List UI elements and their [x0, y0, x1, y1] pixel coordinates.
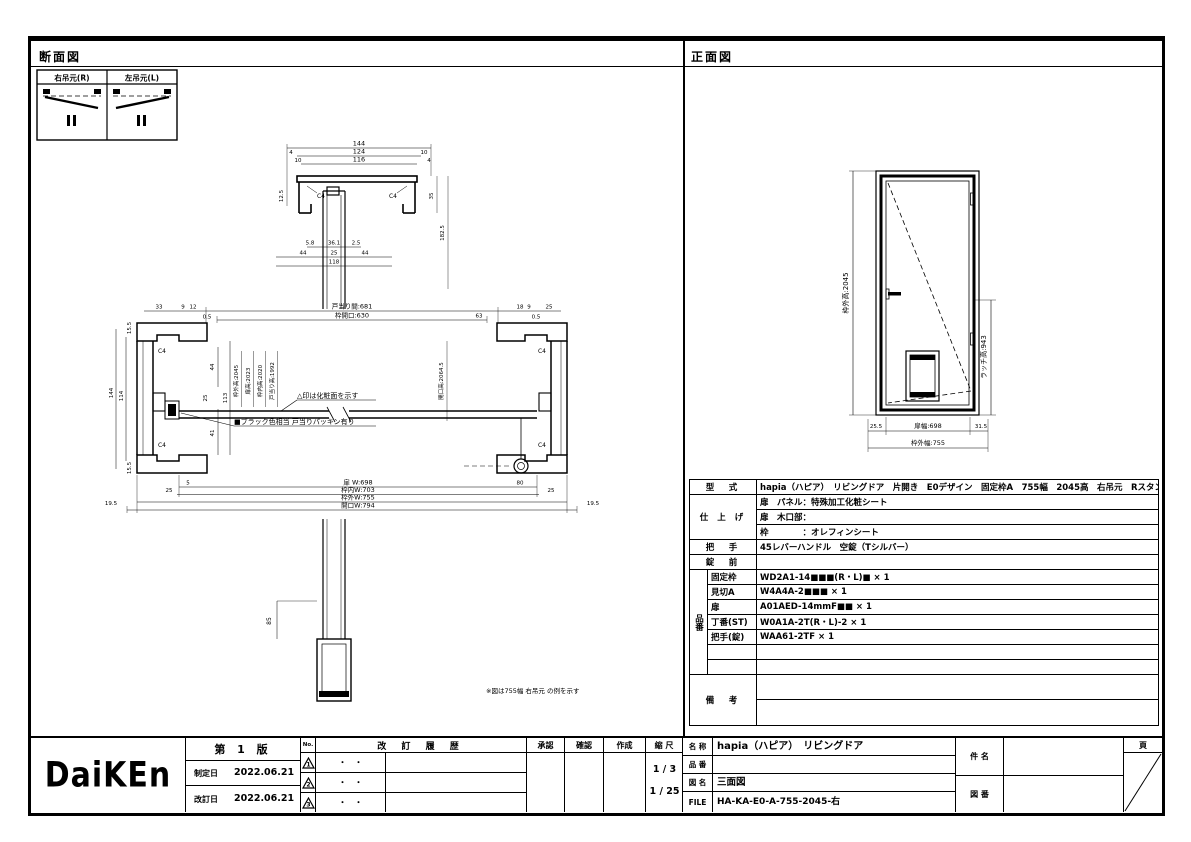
chamfer-c4-head-left: C4 [317, 193, 325, 200]
dim-25-top: 25 [546, 305, 553, 311]
page-cell [1124, 753, 1162, 812]
scale-value-2: 1 / 25 [646, 783, 683, 799]
zumei-label: 図 名 [683, 774, 713, 792]
spec-handle-label: 把 手 [690, 540, 757, 555]
svg-text:3: 3 [306, 801, 310, 808]
vdim-1: 枠外高:2045 [232, 364, 240, 397]
spec-lock-label: 錠 前 [690, 555, 757, 570]
spec-model-label: 型 式 [690, 480, 757, 495]
dim-114-plan: 114 [119, 390, 125, 401]
vdim-opening: 開口高:2064.5 [437, 362, 445, 400]
zuban-value [1004, 776, 1124, 812]
section-view-drawing: 右吊元(R) 左吊元(L) 1 [31, 41, 683, 736]
dim-door-width-698: 扉幅:698 [914, 421, 942, 430]
dim-18: 18 [517, 305, 524, 311]
spec-item-value [757, 645, 1159, 660]
create-cell [604, 753, 646, 812]
left-hinge-icon [113, 89, 171, 126]
plan-section-detail: 戸当り間:681 枠開口:630 33 9 12 0.5 63 18 9 25 … [105, 302, 600, 702]
bottom-width-dims: 扉 W:698 枠内W:703 枠外W:755 開口W:794 19.5 19.… [105, 475, 600, 513]
left-jamb-profile: C4 C4 [137, 323, 207, 473]
kenmei-value [1004, 738, 1124, 776]
rev-date-3: ・ ・ [316, 793, 386, 812]
chamfer-c4-left-bottom: C4 [158, 442, 166, 449]
title-block: DaiKEn 第 1 版 制定日 2022.06.21 改訂日 2022.06.… [31, 736, 1162, 812]
name-label: 名 称 [683, 738, 713, 756]
chamfer-c4-right-top: C4 [538, 348, 546, 355]
dim-25-5: 25.5 [870, 424, 883, 430]
file-label: FILE [683, 792, 713, 812]
check-cell [565, 753, 604, 812]
scale-cell: 1 / 3 1 / 25 [646, 753, 683, 812]
rev-triangle-3: 3 [301, 793, 316, 812]
dim-19-5-left: 19.5 [105, 501, 118, 507]
spec-handle-value: 45レバーハンドル 空錠（Tシルバー） [757, 540, 1159, 555]
spec-lock-value [757, 555, 1159, 570]
specification-table: 型 式 hapia（ハピア） リビングドア 片開き E0デザイン 固定枠A 75… [689, 479, 1159, 726]
dim-44-plan: 44 [210, 363, 216, 370]
spec-item-value: A01AED-14mmF■■ × 1 [757, 600, 1159, 615]
dim-31-5: 31.5 [975, 424, 988, 430]
left-vertical-dims: 15.5 144 114 15.5 44 25 113 41 [109, 321, 230, 474]
chamfer-c4-left-top: C4 [158, 348, 166, 355]
enacted-date: 2022.06.21 [234, 767, 294, 778]
revised-date: 2022.06.21 [234, 793, 294, 804]
hinban-label: 品 番 [683, 756, 713, 774]
note-decorative-face: △印は化粧面を示す [297, 391, 358, 400]
dim-10-left: 10 [295, 158, 302, 164]
dim-opening-794: 開口W:794 [341, 502, 375, 510]
dim-35: 35 [429, 192, 435, 199]
spec-item-name [708, 660, 757, 675]
vdim-3: 枠内高:2020 [256, 364, 264, 397]
dim-25-bottom-right: 25 [548, 488, 555, 494]
dim-0-5-left: 0.5 [203, 315, 212, 321]
plan-notes: △印は化粧面を示す ■ブラック色相当 戸当りパッキン有り [181, 391, 376, 426]
approve-header: 承認 [527, 738, 565, 753]
dim-15-5-bottom: 15.5 [127, 461, 133, 474]
svg-text:1: 1 [306, 761, 310, 768]
approve-cell [527, 753, 565, 812]
spec-item-value: W4A4A-2■■■ × 1 [757, 585, 1159, 600]
check-header: 確認 [565, 738, 604, 753]
dim-63: 63 [476, 314, 483, 320]
spec-item-name [708, 645, 757, 660]
dim-frame-width-755: 枠外幅:755 [911, 438, 945, 447]
dim-0-5-right: 0.5 [532, 315, 541, 321]
head-section-detail: 144 124 116 4 10 10 4 C4 C4 [276, 140, 448, 310]
spec-finish-panel: 扉 パネル：特殊加工化粧シート [757, 495, 1159, 510]
spec-hinban-label: 品番 [690, 570, 708, 675]
scale-header: 縮 尺 [646, 738, 683, 753]
spec-item-value [757, 660, 1159, 675]
enacted-label: 制定日 [194, 768, 218, 779]
dim-12: 12 [190, 305, 197, 311]
daiken-logo-text: DaiKEn [45, 755, 172, 795]
dim-25-plan: 25 [203, 394, 209, 401]
zumei-value: 三面図 [713, 774, 956, 792]
dim-19-5-right: 19.5 [587, 501, 600, 507]
zuban-label: 図 番 [956, 776, 1004, 812]
dim-33: 33 [156, 305, 163, 311]
note-packing: ■ブラック色相当 戸当りパッキン有り [234, 417, 355, 426]
spec-item-name: 固定枠 [708, 570, 757, 585]
door-leaf-plan [179, 407, 537, 473]
door-elevation [876, 171, 979, 415]
dim-12-5: 12.5 [279, 189, 285, 202]
dim-height-2045: 枠外高:2045 [841, 272, 850, 313]
dim-80: 80 [517, 481, 524, 487]
section-footnote: ※図は755幅 右吊元 の例を示す [486, 686, 580, 695]
spec-remarks-label: 備 考 [690, 675, 757, 726]
spec-finish-frame: 枠 ：オレフィンシート [757, 525, 1159, 540]
dim-182-5: 182.5 [440, 225, 446, 241]
spec-finish-label: 仕 上 げ [690, 495, 757, 540]
dim-4-right: 4 [427, 158, 431, 164]
drawing-sheet: 断面図 正面図 右吊元(R) 左吊元(L) [28, 36, 1165, 816]
dim-44-b: 44 [362, 251, 369, 257]
spec-item-name: 把手(錠) [708, 630, 757, 645]
svg-text:2: 2 [306, 781, 310, 788]
spec-item-value: WD2A1-14■■■(R・L)■ × 1 [757, 570, 1159, 585]
lever-handle [888, 292, 901, 296]
dim-latch-943: ラッチ高:943 [979, 335, 988, 379]
name-value: hapia（ハピア） リビングドア [713, 738, 956, 756]
dim-25-bottom-left: 25 [166, 488, 173, 494]
dim-5-bottom: 5 [186, 481, 190, 487]
revised-date-row: 改訂日 2022.06.21 [186, 786, 301, 812]
page-label: 頁 [1124, 738, 1162, 753]
height-dimension-labels: 枠外高:2045 扉高:2023 枠内高:2020 戸当り高:1992 開口高:… [232, 341, 447, 421]
dim-124: 124 [353, 148, 365, 156]
dim-15-5-top: 15.5 [127, 321, 133, 334]
dim-36-1: 36.1 [328, 241, 340, 247]
dim-door-clear-681: 戸当り間:681 [332, 302, 373, 311]
spec-remarks-value-1 [757, 675, 1159, 700]
page-diagonal [1124, 753, 1162, 812]
dim-25-mid: 25 [331, 251, 338, 257]
rev-date-2: ・ ・ [316, 773, 386, 793]
spec-model-value: hapia（ハピア） リビングドア 片開き E0デザイン 固定枠A 755幅 2… [757, 480, 1159, 495]
dim-118: 118 [329, 260, 340, 266]
rev-triangle-1: 1 [301, 753, 316, 773]
spec-item-value: W0A1A-2T(R・L)-2 × 1 [757, 615, 1159, 630]
latch-detail-circle [514, 459, 528, 473]
dim-9: 9 [181, 305, 185, 311]
chamfer-c4-head-right: C4 [389, 193, 397, 200]
hinban-value [713, 756, 956, 774]
right-hinge-icon [43, 89, 101, 126]
edition-label: 第 1 版 [186, 738, 301, 761]
dim-44-a: 44 [300, 251, 307, 257]
dim-10-right: 10 [421, 150, 428, 156]
front-view-drawing: 枠外高:2045 ラッチ高:943 25.5 扉幅:698 31.5 枠外幅:7… [685, 67, 1162, 477]
spec-item-value: WAA61-2TF × 1 [757, 630, 1159, 645]
dim-frame-open-630: 枠開口:630 [335, 311, 369, 320]
spec-item-name: 扉 [708, 600, 757, 615]
dim-116: 116 [353, 156, 365, 164]
dim-4-left: 4 [289, 150, 293, 156]
rev-triangle-2: 2 [301, 773, 316, 793]
dim-85: 85 [266, 617, 273, 625]
scale-value-1: 1 / 3 [646, 761, 683, 777]
spec-finish-edge: 扉 木口部： [757, 510, 1159, 525]
dim-frame-out-755: 枠外W:755 [341, 493, 375, 502]
dim-144: 144 [353, 140, 365, 148]
chamfer-c4-right-bottom: C4 [538, 442, 546, 449]
vdim-2: 扉高:2023 [244, 367, 252, 394]
kenmei-label: 件 名 [956, 738, 1004, 776]
rev-desc-2 [386, 773, 527, 793]
company-logo: DaiKEn [31, 738, 186, 812]
dim-5-8: 5.8 [306, 241, 315, 247]
vdim-4: 戸当り高:1992 [268, 362, 276, 400]
dim-144-plan: 144 [109, 387, 115, 398]
left-hinge-label: 左吊元(L) [124, 73, 159, 83]
rev-desc-1 [386, 753, 527, 773]
dim-113-plan: 113 [223, 392, 229, 403]
door-bottom-detail: 85 [266, 519, 351, 701]
spec-item-name: 丁番(ST) [708, 615, 757, 630]
pet-door [906, 351, 939, 401]
right-hinge-label: 右吊元(R) [53, 73, 89, 83]
rev-desc-3 [386, 793, 527, 812]
hinge-direction-table: 右吊元(R) 左吊元(L) [37, 70, 177, 140]
dim-41-plan: 41 [210, 430, 216, 437]
spec-item-name: 見切A [708, 585, 757, 600]
dim-2-5: 2.5 [352, 241, 361, 247]
dim-9b: 9 [527, 305, 531, 311]
rev-date-1: ・ ・ [316, 753, 386, 773]
enacted-date-row: 制定日 2022.06.21 [186, 761, 301, 786]
right-jamb-profile: C4 C4 [497, 323, 567, 473]
create-header: 作成 [604, 738, 646, 753]
front-view-title: 正面図 [691, 48, 733, 65]
revised-label: 改訂日 [194, 794, 218, 805]
spec-remarks-value-2 [757, 700, 1159, 726]
file-value: HA-KA-E0-A-755-2045-右 [713, 792, 956, 812]
revision-history-header: 改 訂 履 歴 [316, 738, 527, 753]
rev-no-header: No. [301, 738, 316, 753]
